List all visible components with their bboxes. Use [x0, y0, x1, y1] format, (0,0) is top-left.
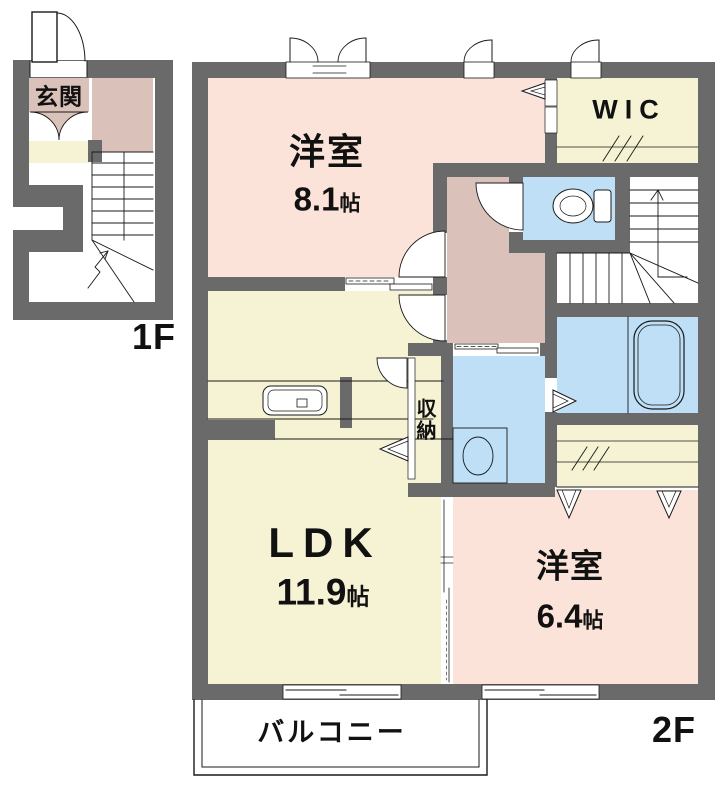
storage-name: 収納 [414, 398, 434, 442]
washroom-floor [453, 356, 545, 483]
bedroom64-size-value: 6.4 [537, 598, 583, 635]
floor2-label: 2F [652, 712, 696, 748]
ldk-floor [208, 291, 441, 684]
wic-name: WIC [592, 97, 665, 124]
bathroom-floor [557, 317, 698, 413]
bedroom64-closet-floor [557, 423, 698, 487]
entrance-door-arc [57, 13, 85, 61]
balcony-name: バルコニー [257, 720, 406, 747]
bedroom64-floor [453, 490, 698, 684]
entrance-name: 玄関 [35, 86, 83, 109]
bedroom64-size-unit: 帖 [582, 610, 603, 633]
floor1-landing-floor [29, 141, 90, 163]
bedroom81-size-value: 8.1 [294, 181, 340, 218]
bedroom81-size-unit: 帖 [339, 193, 360, 216]
floor-plan: 洋室 8.1帖 WIC LDK 11.9帖 収納 洋室 6.4帖 バルコニー 玄… [0, 0, 719, 787]
bedroom64-window [482, 685, 599, 699]
ldk-balcony-window [283, 685, 401, 699]
ldk-size: 11.9帖 [277, 574, 370, 611]
bedroom81-size: 8.1帖 [294, 183, 361, 216]
floor1-label: 1F [132, 319, 176, 355]
sliding-door-ldk-bedroom64 [441, 497, 453, 684]
stairs2f-upper-area [630, 177, 698, 303]
floor1-plan [13, 12, 173, 320]
stairs2f-lower-area [557, 253, 630, 303]
ldk-size-value: 11.9 [277, 572, 347, 613]
bedroom81-name: 洋室 [289, 134, 365, 170]
ldk-size-unit: 帖 [346, 584, 369, 610]
bedroom64-size: 6.4帖 [537, 600, 604, 633]
toilet-icon [553, 189, 611, 223]
sliding-door-washroom [453, 343, 540, 356]
sliding-door-bedroom81-ldk [345, 277, 433, 291]
bedroom81-window [286, 38, 370, 78]
wic-window [571, 40, 601, 78]
floor2-plan [192, 38, 715, 775]
entrance-door-leaf [32, 12, 57, 62]
entrance-door [30, 12, 87, 77]
bedroom81-floor [208, 78, 545, 163]
bedroom64-name: 洋室 [536, 550, 604, 583]
faucet-icon [297, 399, 307, 407]
ldk-name: LDK [268, 522, 381, 564]
bedroom81-window-2 [464, 40, 494, 78]
